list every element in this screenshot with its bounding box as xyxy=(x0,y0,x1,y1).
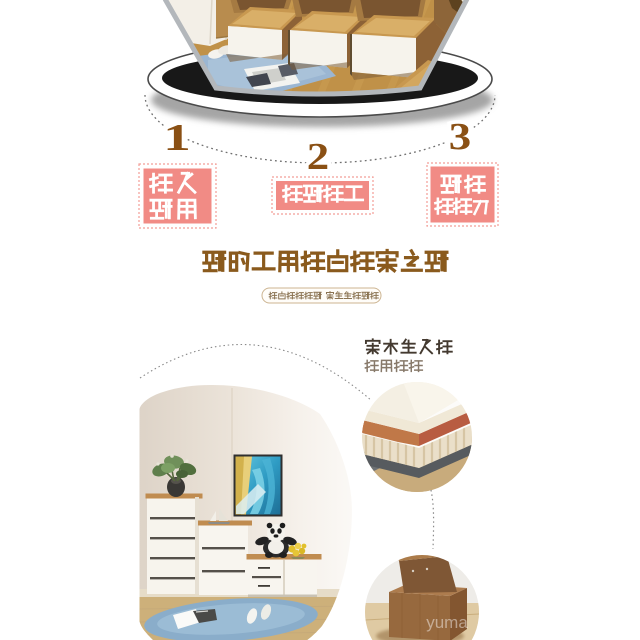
svg-text:1: 1 xyxy=(163,117,191,159)
svg-text:yuma: yuma xyxy=(426,613,468,632)
svg-text:3: 3 xyxy=(449,115,471,157)
svg-text:2: 2 xyxy=(307,135,329,177)
